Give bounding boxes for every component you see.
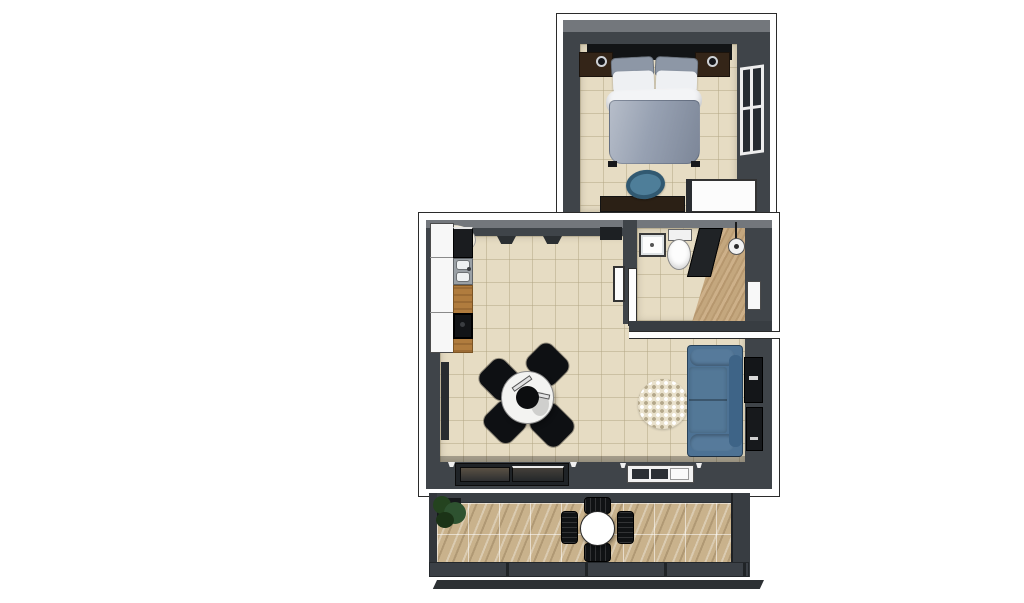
balcony-chair-right (617, 511, 634, 544)
bathroom-door-panel (613, 266, 625, 302)
media-wall-unit-upper (744, 357, 763, 403)
cooktop-knob-icon (460, 322, 465, 327)
wardrobe-side-panel (686, 179, 692, 213)
bottom-wall-shadow (440, 456, 745, 462)
media-wall-unit-lower (746, 407, 763, 451)
shower-head-center (734, 244, 739, 249)
wardrobe (686, 179, 757, 213)
kitchen-cabinets (430, 223, 454, 353)
towel-radiator (747, 281, 761, 310)
cabinet-divider-2 (430, 312, 454, 313)
bed-foot-right (691, 161, 700, 167)
pendant-lamp-icon (516, 386, 539, 409)
bathroom-bottom-wall-cut (629, 331, 780, 339)
sofa-back-cushion (729, 355, 742, 447)
media-unit-base-sliver (750, 437, 758, 440)
living-wall-top-face (426, 220, 772, 228)
round-dotted-rug (638, 379, 688, 429)
balcony-railing (429, 562, 749, 577)
wall-lamp-left-icon (596, 56, 607, 67)
balcony-chair-left (561, 511, 578, 544)
sliding-door-panel-right (512, 466, 564, 482)
bedroom-wall-top-face (563, 20, 770, 32)
floorplan-canvas (0, 0, 1024, 603)
bottom-window-pane-1 (632, 469, 649, 479)
basin-drain-icon (650, 243, 654, 247)
bed-foot-left (608, 161, 617, 167)
sliding-door-panel-left (460, 467, 510, 482)
cabinet-divider-1 (430, 257, 454, 258)
sink-basin-bottom (456, 272, 470, 282)
bottom-window-pane-2 (651, 469, 668, 479)
fridge-appliance (453, 227, 473, 258)
sink-faucet-icon (467, 267, 471, 271)
media-unit-shelf-sliver (749, 376, 758, 380)
bottom-window-sill (670, 468, 689, 480)
bathroom-left-wall-cut (628, 268, 637, 326)
wall-lamp-right-icon (707, 56, 718, 67)
toilet-bowl (667, 239, 691, 270)
balcony-table (580, 511, 615, 546)
bedroom-window-mullion-v (750, 68, 753, 152)
railing-base (433, 580, 764, 589)
plant-foliage-3 (436, 512, 454, 528)
sofa-seat-split (689, 399, 727, 401)
left-wall-niche (441, 362, 449, 440)
entry-door-opening (600, 227, 622, 240)
bed-duvet (609, 100, 700, 164)
